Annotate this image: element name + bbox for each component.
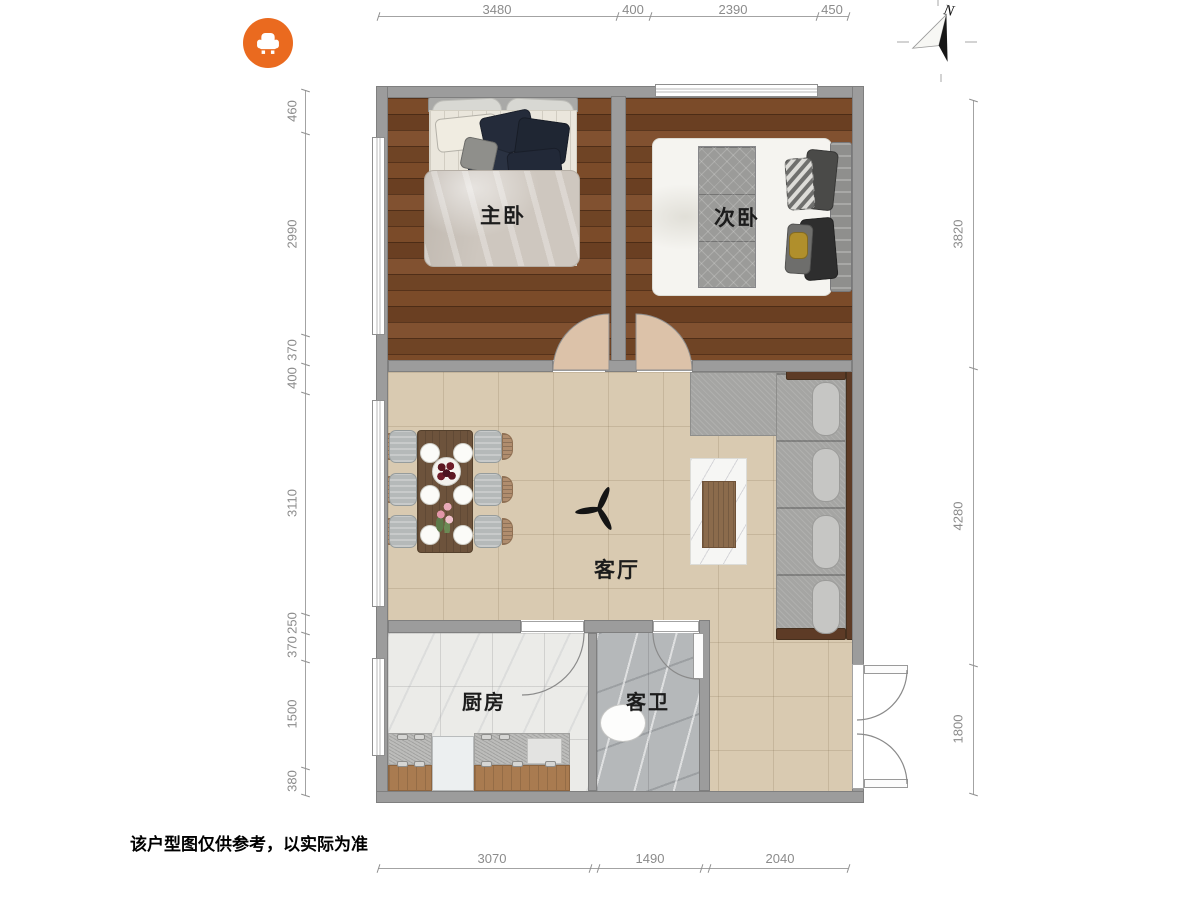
dim-label: 2990 — [285, 220, 300, 249]
wall-right-upper — [852, 86, 864, 668]
dining-chair — [389, 473, 417, 506]
dim-label: 380 — [285, 770, 300, 792]
yellow-pillow — [789, 232, 808, 259]
dim-label: 3110 — [285, 489, 300, 517]
cabinet-handle — [481, 734, 492, 740]
dim-label: 400 — [622, 2, 644, 17]
room-label-master: 主卧 — [480, 200, 526, 230]
dim-label: 1800 — [951, 715, 966, 744]
dim-tick — [969, 793, 978, 797]
north-arrow-icon: N — [897, 0, 977, 82]
dimension-line-top — [378, 16, 848, 17]
dim-label: 460 — [285, 100, 300, 122]
dim-label: 3070 — [478, 851, 507, 866]
kitchen-door-sill — [521, 621, 584, 632]
dim-label: 2040 — [766, 851, 795, 866]
kitchen-cabinet — [388, 765, 432, 791]
dining-chair — [474, 473, 502, 506]
cabinet-handle — [499, 734, 510, 740]
armchair-icon — [252, 27, 284, 59]
dim-label: 1490 — [636, 851, 665, 866]
dining-chair — [389, 430, 417, 463]
disclaimer-text: 该户型图仅供参考，以实际为准 — [130, 830, 368, 855]
coffee-table-tray — [702, 481, 736, 548]
dim-label: 370 — [285, 339, 300, 361]
sofa-pillow — [812, 448, 840, 502]
wall-bedrooms-living-right — [692, 360, 852, 372]
cabinet-handle — [397, 734, 408, 740]
cabinet-handle — [414, 761, 425, 767]
wall-bedrooms-living-mid — [605, 360, 637, 372]
sofa-pillow — [812, 515, 840, 569]
cabinet-handle — [481, 761, 492, 767]
cabinet-handle — [397, 761, 408, 767]
window-living-left — [372, 400, 385, 607]
compass-n-label: N — [941, 2, 956, 20]
brand-badge — [243, 18, 293, 68]
wall-bottom — [376, 791, 864, 803]
cabinet-handle — [512, 761, 523, 767]
dim-label: 400 — [285, 367, 300, 389]
dining-chair — [389, 515, 417, 548]
window-second-top — [655, 84, 818, 97]
dining-chair — [474, 430, 502, 463]
dim-label: 4280 — [951, 502, 966, 531]
kitchen-sink — [527, 738, 562, 764]
dim-label: 250 — [285, 612, 300, 634]
dim-tick — [847, 12, 851, 21]
wall-kitchen-bath-divider — [588, 633, 597, 791]
entry-door-leaf-bottom — [864, 779, 908, 788]
entry-door-leaf-top — [864, 665, 908, 674]
wall-kitchen-bath-top — [584, 620, 653, 633]
chevron-pillow — [784, 157, 816, 211]
window-kitchen-left — [372, 658, 385, 756]
gray-pillow — [459, 136, 499, 174]
dining-chair — [474, 515, 502, 548]
dimension-line-left — [305, 90, 306, 795]
dim-tick — [301, 794, 310, 798]
wall-bedrooms-living-left — [388, 360, 553, 372]
sofa-chaise — [690, 372, 778, 436]
bath-door-leaf — [693, 633, 704, 679]
cabinet-handle — [414, 734, 425, 740]
hallway-floor — [710, 620, 852, 791]
entry-door-swing-top — [857, 670, 907, 720]
dim-label: 3480 — [483, 2, 512, 17]
second-door-sill — [637, 361, 692, 371]
dim-label: 2390 — [719, 2, 748, 17]
floorplan: N 主卧 次卧 客厅 厨房 客卫 3480 400 2390 450 460 2… — [0, 0, 1200, 900]
room-label-kitchen: 厨房 — [462, 686, 506, 715]
master-door-sill — [553, 361, 605, 371]
room-label-bath: 客卫 — [626, 686, 670, 715]
dim-label: 370 — [285, 636, 300, 658]
dim-label: 1500 — [285, 700, 300, 729]
dim-tick — [847, 864, 851, 873]
kitchen-counter — [388, 733, 432, 765]
sofa-pillow — [812, 382, 840, 436]
sofa-pillow — [812, 580, 840, 634]
dimension-line-right — [973, 100, 974, 794]
kitchen-cabinet — [474, 765, 570, 791]
fruit-bowl — [432, 457, 461, 486]
room-label-second: 次卧 — [714, 202, 760, 232]
bath-door-sill — [653, 621, 699, 632]
room-label-living: 客厅 — [594, 554, 640, 584]
flowers — [432, 501, 458, 533]
dim-label: 450 — [821, 2, 843, 17]
dimension-line-bottom — [378, 868, 848, 869]
fridge — [432, 736, 474, 791]
wall-bedroom-divider — [611, 96, 626, 372]
window-master-left — [372, 137, 385, 335]
dim-label: 3820 — [951, 220, 966, 249]
wall-kitchen-top — [388, 620, 521, 633]
entry-door-sill — [852, 664, 864, 789]
entry-door-swing-bottom — [857, 734, 907, 784]
cabinet-handle — [545, 761, 556, 767]
